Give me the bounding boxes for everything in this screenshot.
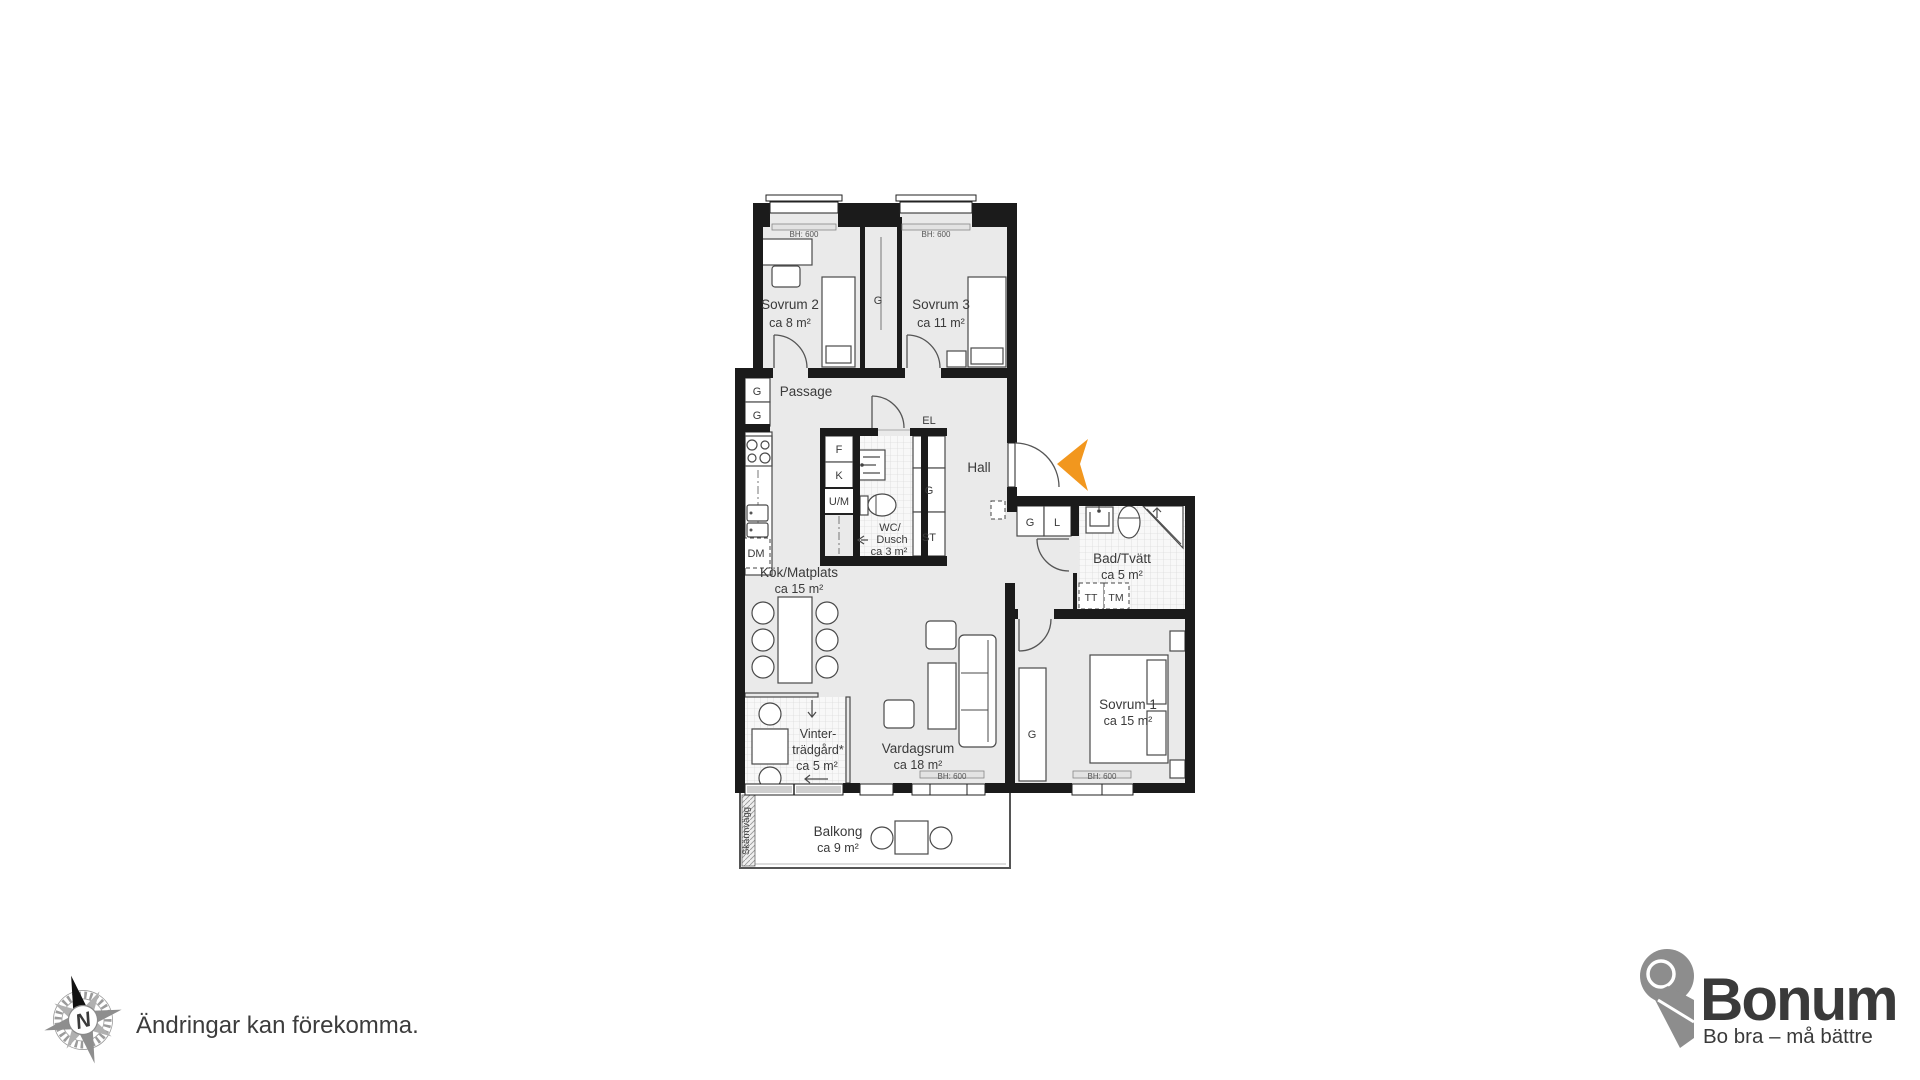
el-closet (913, 436, 945, 468)
pillow (826, 346, 851, 363)
closet-label-st: ST (922, 532, 936, 544)
page: Sovrum 2 ca 8 m² G Sovrum 3 ca 11 m² BH:… (0, 0, 1920, 1080)
toilet (868, 494, 896, 516)
room-area-sovrum2: ca 8 m² (769, 316, 811, 330)
closet-label-l: L (1054, 517, 1060, 529)
bonum-logo: Bonum Bo bra – må bättre (1640, 949, 1897, 1048)
dryer-label: TT (1085, 592, 1098, 604)
room-label-passage: Passage (780, 384, 833, 399)
room-area-bad: ca 5 m² (1101, 568, 1143, 582)
oven-micro-label: U/M (829, 496, 849, 508)
pillow (971, 348, 1003, 364)
bonum-tagline: Bo bra – må bättre (1703, 1025, 1873, 1048)
room-label-vardagsrum: Vardagsrum (882, 741, 955, 756)
washer-label: TM (1108, 592, 1123, 604)
bonum-logo-icon (1640, 949, 1694, 1048)
room-area-sovrum1: ca 15 m² (1104, 714, 1153, 728)
wardrobe (1019, 668, 1046, 781)
balcony-table (895, 821, 928, 854)
chair (759, 703, 781, 725)
screen-wall-label: Skärmvägg (741, 807, 752, 855)
chair (871, 827, 893, 849)
room-label-kok: Kök/Matplats (760, 565, 838, 580)
sofa (959, 635, 996, 747)
compass-north-icon: N (26, 963, 140, 1077)
chair (752, 629, 774, 651)
disclaimer-text: Ändringar kan förekomma. (136, 1012, 419, 1039)
window-height-label: BH: 600 (790, 230, 819, 239)
desk (762, 239, 812, 265)
chair (816, 656, 838, 678)
window-height-label: BH: 600 (938, 772, 967, 781)
closet-label: G (1026, 517, 1035, 529)
floor-plan: Sovrum 2 ca 8 m² G Sovrum 3 ca 11 m² BH:… (0, 0, 1920, 1080)
freezer-label: K (835, 470, 843, 482)
nightstand (947, 351, 966, 367)
room-label-balkong: Balkong (814, 824, 863, 839)
room-area-wc: ca 3 m² (871, 546, 908, 558)
window-height-label: BH: 600 (1088, 772, 1117, 781)
window (900, 202, 972, 213)
room-area-balkong: ca 9 m² (817, 841, 859, 855)
closet-label: G (753, 386, 762, 398)
armchair (926, 621, 956, 649)
closet-label: G (925, 485, 934, 497)
desk-chair (772, 266, 800, 287)
room-label-sovrum3: Sovrum 3 (912, 297, 970, 312)
dashed-cabinet (991, 501, 1005, 519)
armchair (884, 700, 914, 728)
entrance-door (1008, 443, 1015, 487)
chair (816, 629, 838, 651)
closet-label: G (753, 410, 762, 422)
room-label-hall: Hall (967, 460, 990, 475)
chair (752, 602, 774, 624)
toilet (1118, 506, 1140, 538)
nightstand (1170, 760, 1185, 778)
window (860, 784, 893, 795)
room-area-kok: ca 15 m² (775, 582, 824, 596)
room-label-bad: Bad/Tvätt (1093, 551, 1151, 566)
dishwasher-label: DM (747, 548, 764, 560)
room-label-wc-line1: WC/ (879, 522, 901, 534)
closet-label: G (874, 295, 883, 307)
room-label-sovrum1: Sovrum 1 (1099, 697, 1157, 712)
dining-table (778, 597, 812, 683)
room-area-vardagsrum: ca 18 m² (894, 758, 943, 772)
fridge-label: F (836, 444, 843, 456)
entrance-arrow-icon (1057, 439, 1088, 491)
window (770, 202, 838, 213)
closet-label: G (1028, 729, 1037, 741)
chair (930, 827, 952, 849)
el-label: EL (922, 415, 935, 427)
room-label-sovrum2: Sovrum 2 (761, 297, 819, 312)
bonum-logo-text: Bonum (1700, 966, 1897, 1033)
chair (752, 656, 774, 678)
chair (816, 602, 838, 624)
room-label-wc-line2: Dusch (876, 534, 907, 546)
room-label-vinter-line1: Vinter- (800, 727, 837, 741)
window-height-label: BH: 600 (922, 230, 951, 239)
room-area-vinter: ca 5 m² (796, 759, 838, 773)
room-label-vinter-line2: trädgård* (792, 743, 844, 757)
coffee-table (928, 663, 956, 729)
window (912, 784, 985, 795)
toilet-tank (860, 496, 868, 515)
nightstand (1170, 631, 1185, 651)
room-area-sovrum3: ca 11 m² (917, 316, 965, 330)
garden-table (752, 729, 788, 764)
